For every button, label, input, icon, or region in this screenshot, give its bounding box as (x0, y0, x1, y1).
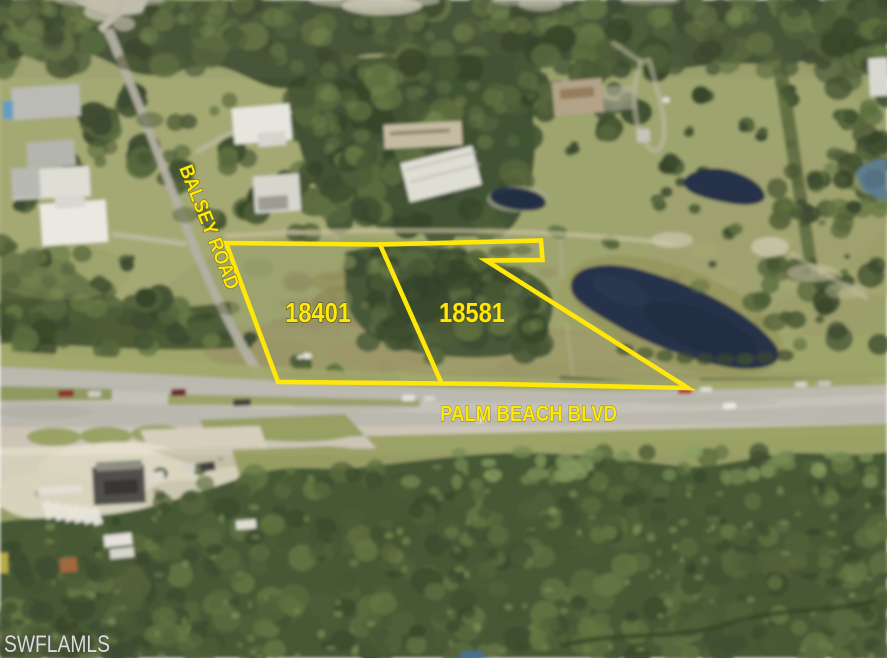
svg-text:18581: 18581 (439, 297, 505, 328)
svg-text:SWFLAMLS: SWFLAMLS (4, 631, 110, 658)
svg-text:18401: 18401 (285, 297, 351, 328)
svg-text:PALM BEACH BLVD: PALM BEACH BLVD (440, 401, 617, 426)
